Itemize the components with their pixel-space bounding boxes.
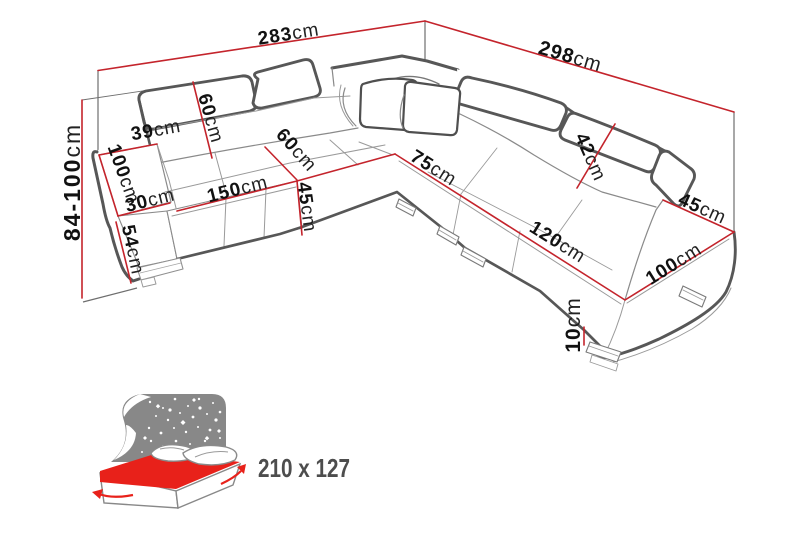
svg-text:10cm: 10cm xyxy=(562,297,585,352)
svg-text:210 x 127: 210 x 127 xyxy=(258,453,350,483)
svg-text:84-100cm: 84-100cm xyxy=(59,123,85,241)
